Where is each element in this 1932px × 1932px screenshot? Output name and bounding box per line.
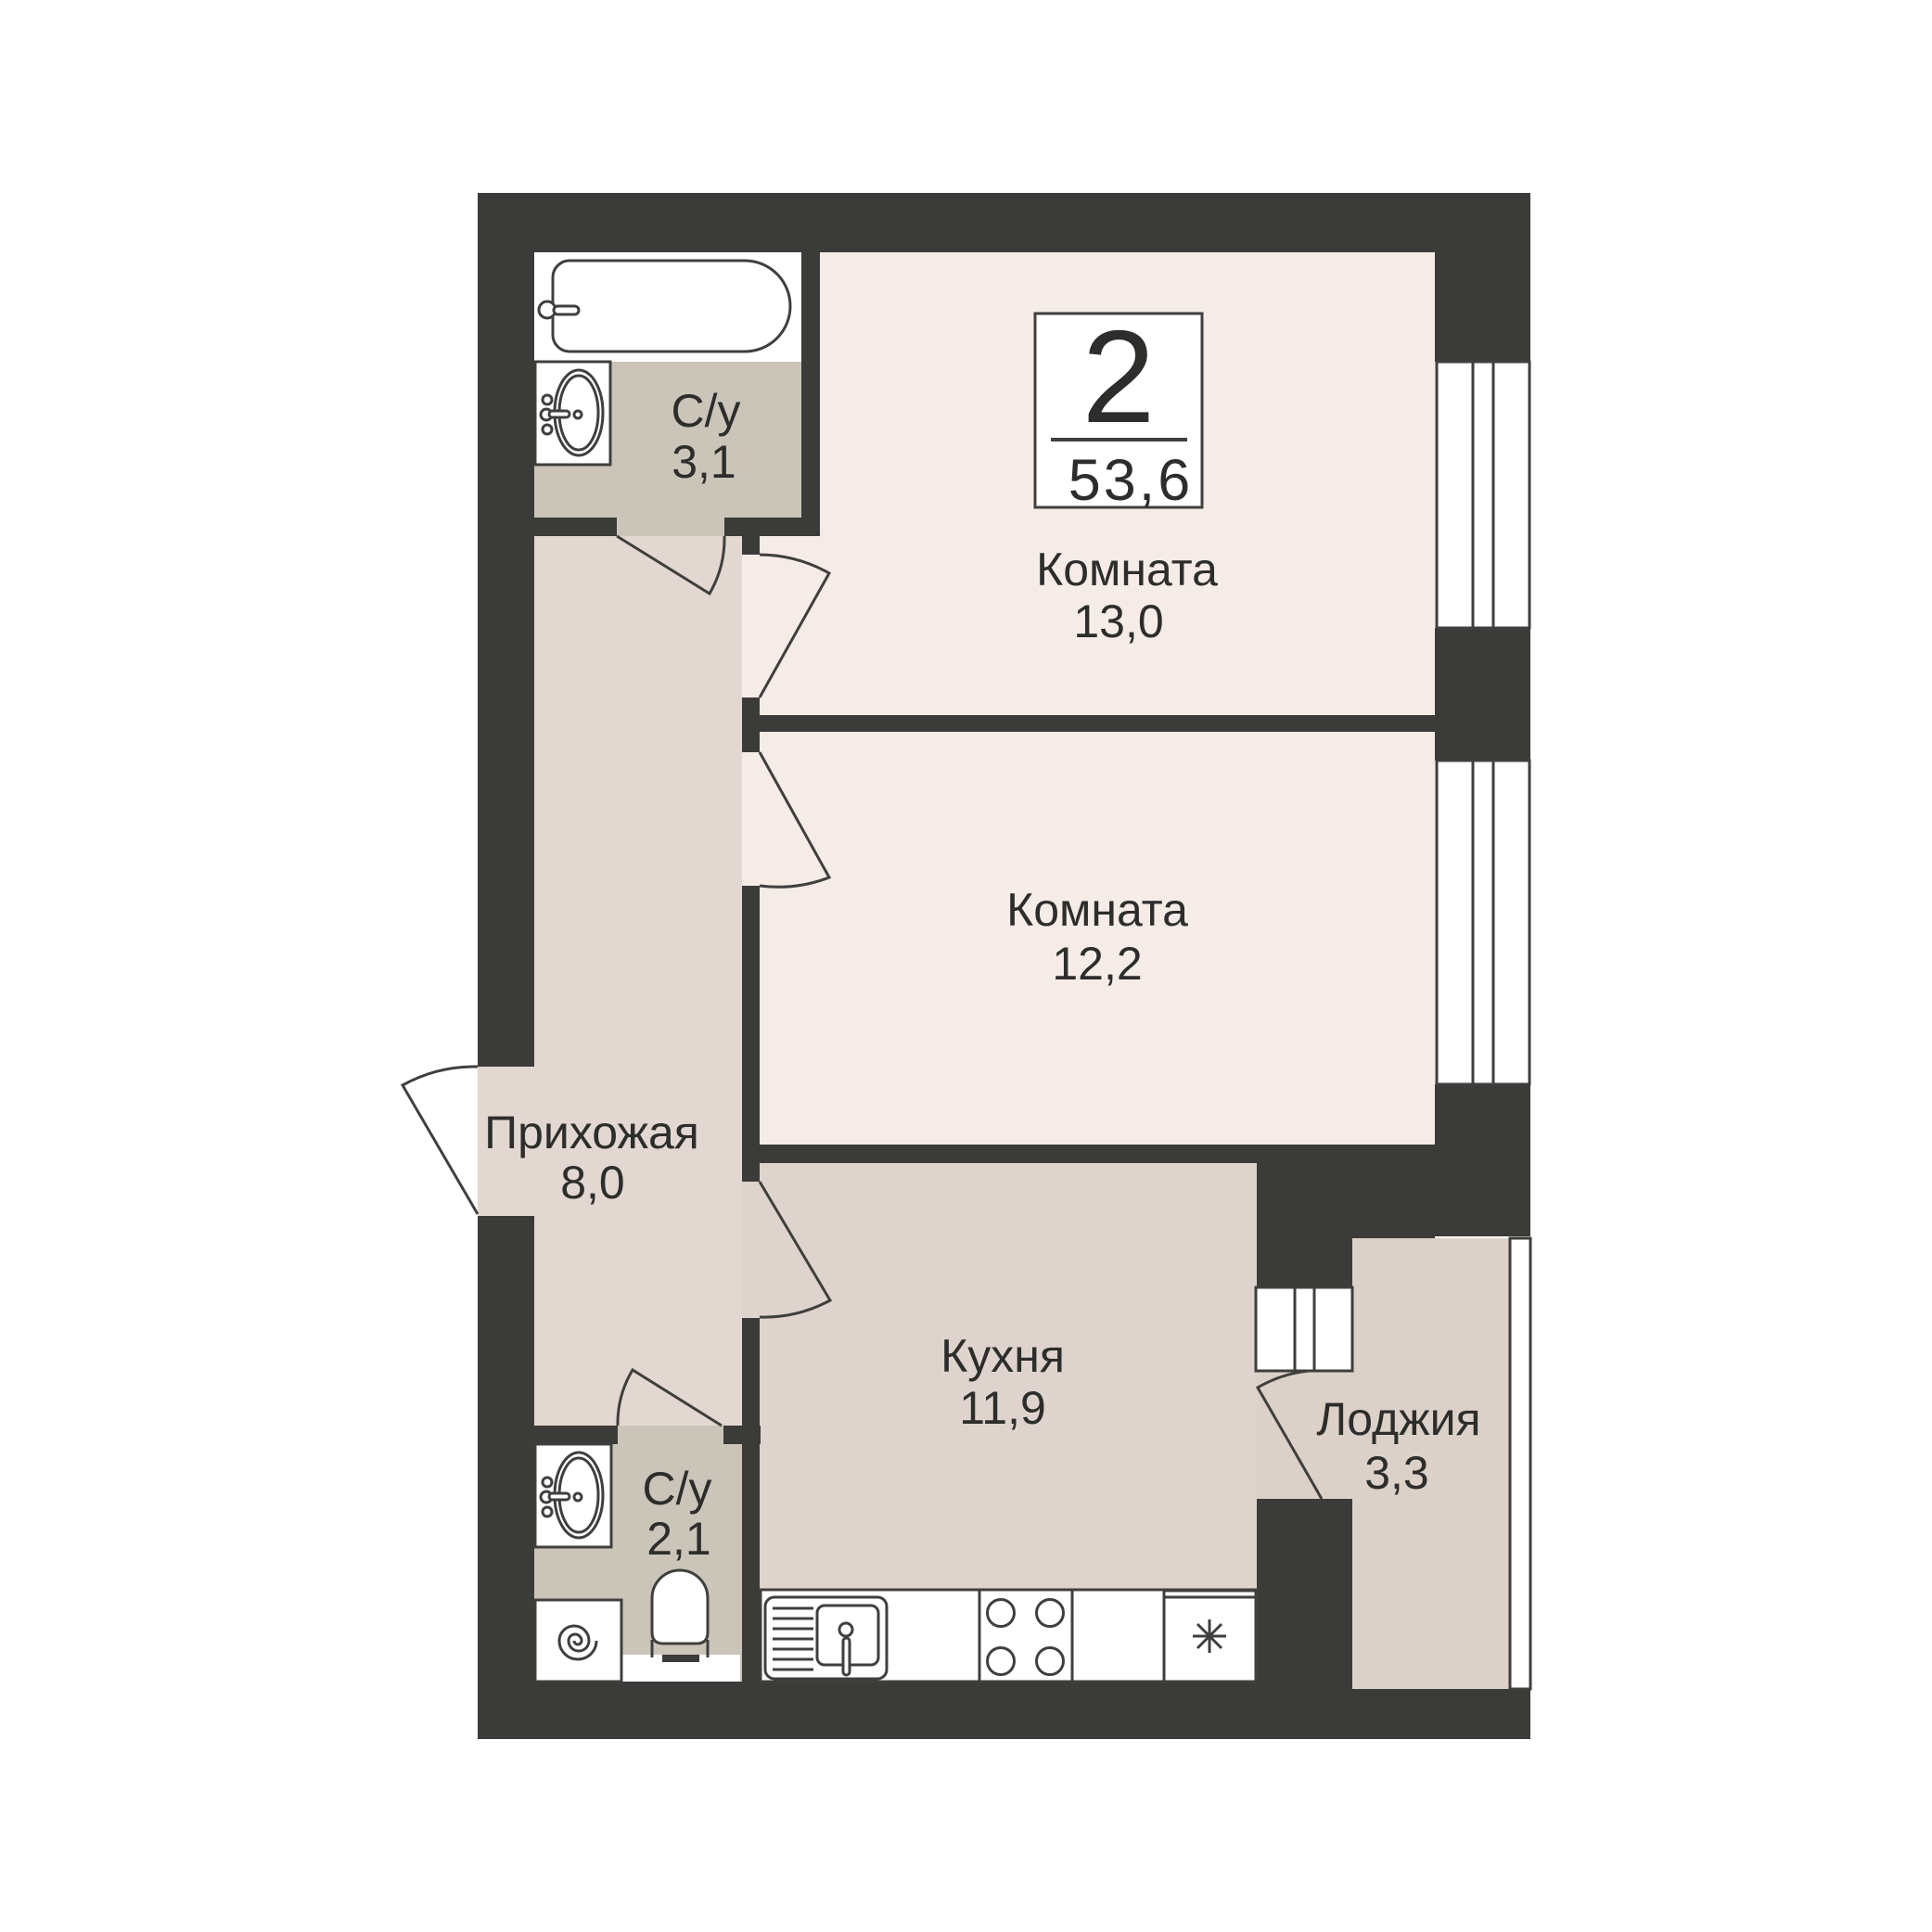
svg-text:2,1: 2,1 [646, 1513, 711, 1565]
svg-text:Комната: Комната [1006, 884, 1188, 936]
svg-text:Комната: Комната [1036, 544, 1218, 595]
svg-text:Лоджия: Лоджия [1316, 1393, 1480, 1445]
svg-text:53,6: 53,6 [1068, 448, 1194, 513]
svg-text:2: 2 [1082, 303, 1156, 451]
svg-text:3,3: 3,3 [1364, 1447, 1429, 1499]
svg-text:3,1: 3,1 [672, 436, 736, 488]
svg-text:С/у: С/у [672, 385, 741, 437]
svg-text:12,2: 12,2 [1052, 938, 1142, 990]
svg-text:Прихожая: Прихожая [484, 1107, 699, 1158]
svg-text:11,9: 11,9 [959, 1382, 1046, 1434]
svg-text:Кухня: Кухня [940, 1330, 1065, 1382]
svg-text:8,0: 8,0 [560, 1157, 625, 1209]
svg-text:С/у: С/у [643, 1463, 712, 1515]
svg-text:13,0: 13,0 [1073, 595, 1163, 647]
